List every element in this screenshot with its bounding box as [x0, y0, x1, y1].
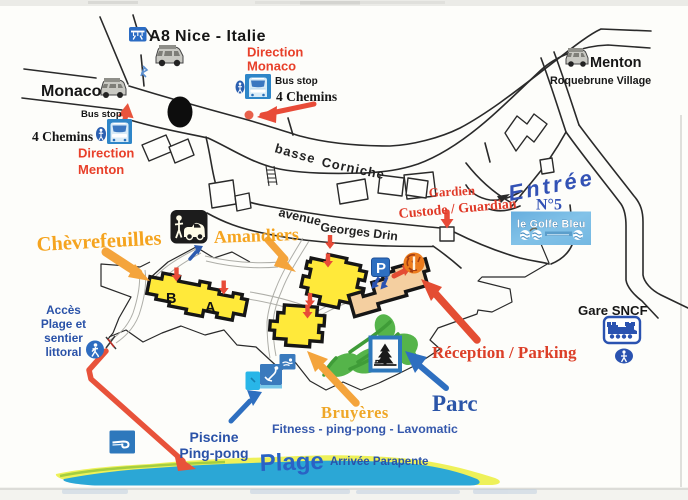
svg-text:Nice - Italie: Nice - Italie: [175, 28, 266, 45]
svg-text:4 Chemins: 4 Chemins: [276, 89, 337, 104]
svg-text:Plage et: Plage et: [41, 317, 86, 331]
svg-text:A: A: [205, 300, 216, 316]
svg-text:N°5: N°5: [536, 197, 562, 214]
svg-text:Monaco: Monaco: [247, 59, 296, 74]
svg-text:Ping-pong: Ping-pong: [179, 445, 248, 461]
svg-text:P: P: [376, 260, 386, 277]
svg-text:4 Chemins: 4 Chemins: [32, 129, 93, 144]
svg-text:Direction: Direction: [78, 146, 134, 161]
svg-text:Bus stop: Bus stop: [275, 76, 318, 87]
svg-text:Parc: Parc: [432, 391, 478, 416]
svg-text:B: B: [166, 291, 176, 307]
svg-text:Accès: Accès: [46, 303, 81, 317]
svg-text:sentier: sentier: [44, 331, 83, 345]
svg-text:Menton: Menton: [78, 162, 124, 177]
svg-text:Gare SNCF: Gare SNCF: [578, 303, 648, 318]
svg-text:Roquebrune Village: Roquebrune Village: [550, 75, 651, 87]
svg-text:Gardien: Gardien: [428, 183, 476, 200]
svg-text:Réception / Parking: Réception / Parking: [432, 343, 577, 362]
svg-text:le Golfe Bleu: le Golfe Bleu: [517, 219, 586, 231]
svg-text:Direction: Direction: [247, 45, 303, 60]
svg-text:Plage: Plage: [259, 448, 324, 477]
svg-text:Arrivée Parapente: Arrivée Parapente: [330, 456, 428, 468]
svg-text:A8: A8: [149, 28, 170, 45]
svg-text:Bruyères: Bruyères: [321, 403, 389, 422]
svg-text:Fitness - ping-pong - Lavomati: Fitness - ping-pong - Lavomatic: [272, 422, 458, 436]
svg-text:littoral: littoral: [45, 345, 81, 359]
svg-text:Bus stop: Bus stop: [81, 109, 122, 120]
svg-text:Piscine: Piscine: [189, 429, 238, 445]
svg-text:Monaco: Monaco: [41, 83, 102, 100]
svg-text:Amandiers: Amandiers: [213, 224, 299, 247]
svg-text:Menton: Menton: [590, 55, 642, 71]
